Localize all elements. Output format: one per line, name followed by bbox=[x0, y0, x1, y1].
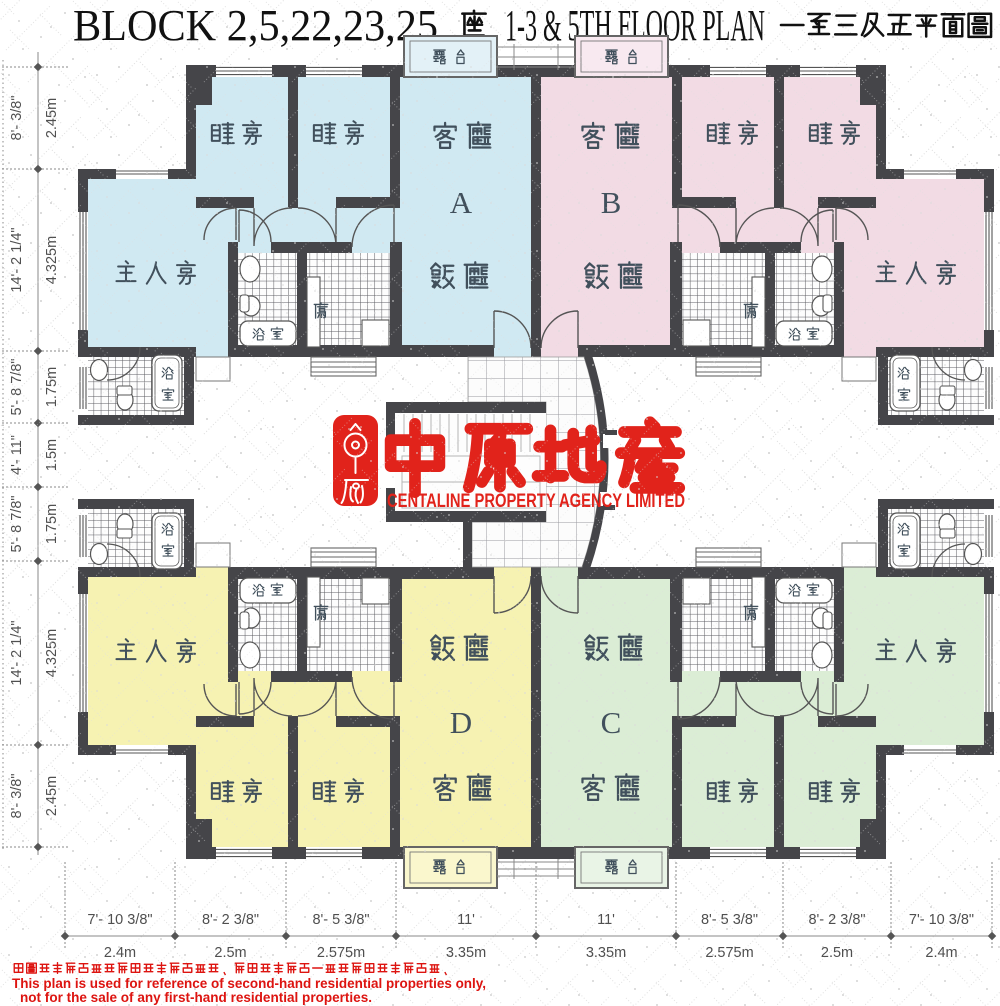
svg-text:3.35m: 3.35m bbox=[586, 945, 626, 961]
svg-text:8'- 2 3/8": 8'- 2 3/8" bbox=[808, 912, 865, 928]
svg-text:2.4m: 2.4m bbox=[104, 945, 136, 961]
svg-text:11': 11' bbox=[597, 912, 615, 928]
svg-text:8'- 5 3/8": 8'- 5 3/8" bbox=[701, 912, 758, 928]
svg-text:BLOCK 2,5,22,23,25: BLOCK 2,5,22,23,25 bbox=[73, 1, 438, 50]
svg-text:2.575m: 2.575m bbox=[705, 945, 753, 961]
svg-text:3.35m: 3.35m bbox=[446, 945, 486, 961]
svg-text:11': 11' bbox=[457, 912, 475, 928]
svg-text:2.5m: 2.5m bbox=[214, 945, 246, 961]
svg-text:8'- 5 3/8": 8'- 5 3/8" bbox=[312, 912, 369, 928]
svg-text:8'- 2 3/8": 8'- 2 3/8" bbox=[202, 912, 259, 928]
svg-text:2.5m: 2.5m bbox=[821, 945, 853, 961]
svg-text:7'- 10 3/8": 7'- 10 3/8" bbox=[909, 912, 974, 928]
svg-text:2.4m: 2.4m bbox=[925, 945, 957, 961]
svg-text:7'- 10 3/8": 7'- 10 3/8" bbox=[87, 912, 152, 928]
svg-text:2.575m: 2.575m bbox=[317, 945, 365, 961]
svg-text:not for the sale of any first-: not for the sale of any first-hand resid… bbox=[20, 989, 372, 1005]
